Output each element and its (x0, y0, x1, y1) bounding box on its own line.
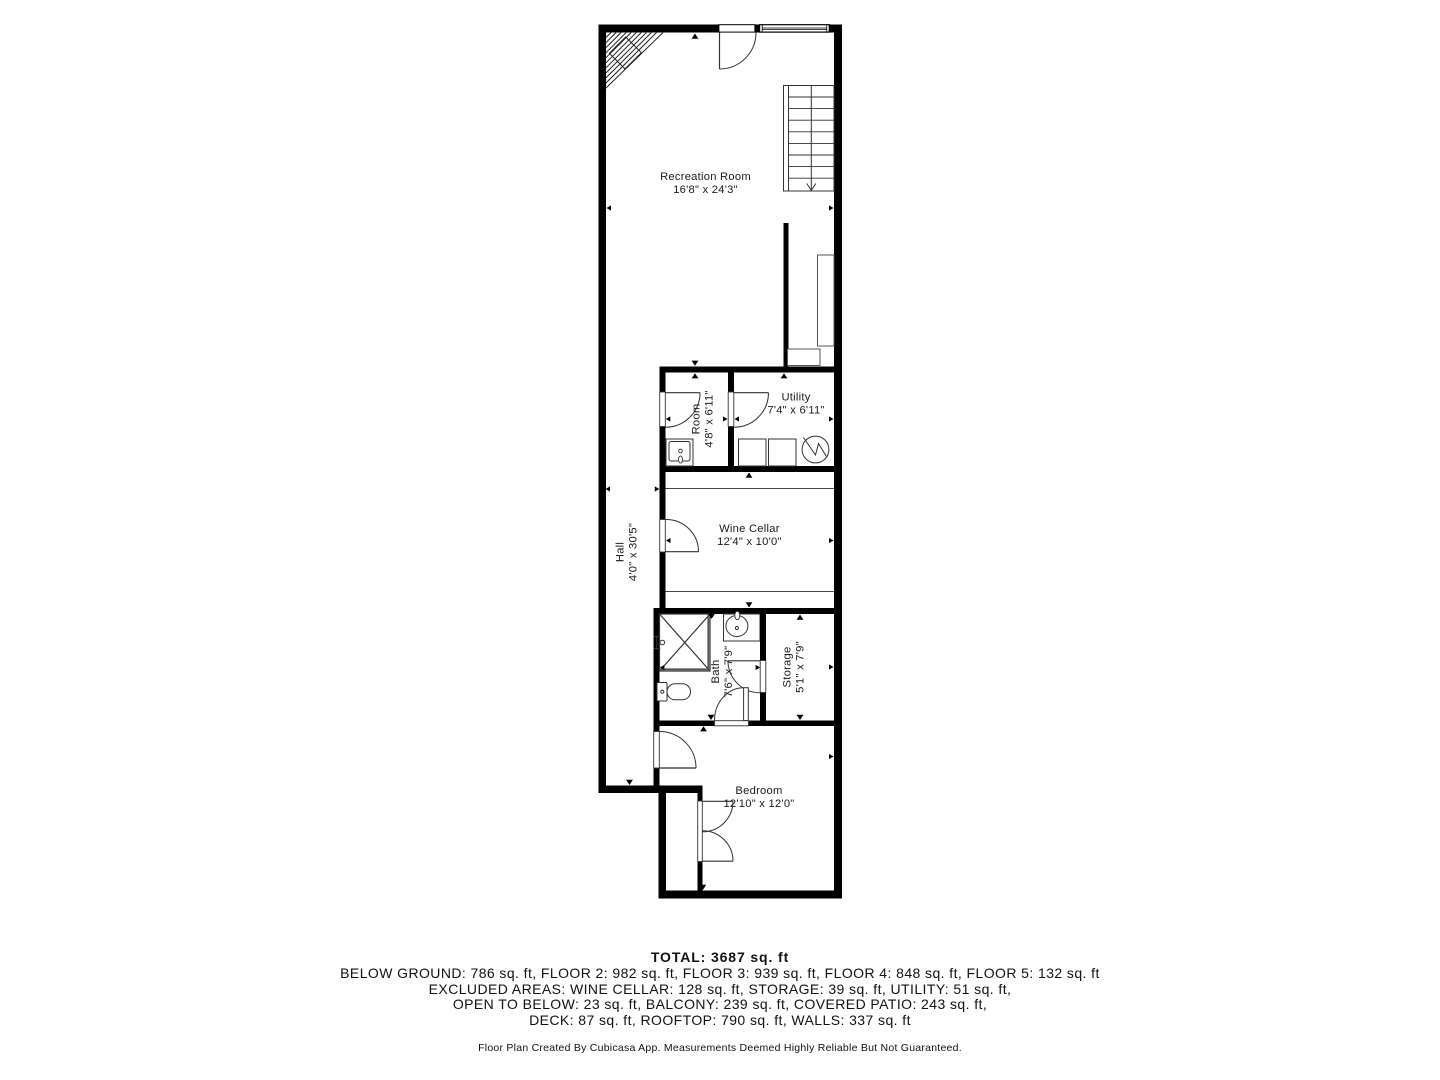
svg-text:4'0" x 30'5": 4'0" x 30'5" (628, 523, 640, 581)
svg-text:Wine Cellar: Wine Cellar (719, 523, 780, 535)
svg-text:5'1" x 7'9": 5'1" x 7'9" (795, 641, 807, 693)
svg-text:Room: Room (691, 404, 703, 435)
svg-text:12'4" x 10'0": 12'4" x 10'0" (717, 536, 782, 548)
svg-text:12'10" x 12'0": 12'10" x 12'0" (723, 798, 794, 810)
svg-text:4'8" x 6'11": 4'8" x 6'11" (704, 390, 716, 447)
svg-text:7'6" x 7'9": 7'6" x 7'9" (723, 646, 735, 698)
svg-text:Recreation Room: Recreation Room (660, 171, 751, 183)
svg-text:7'4" x 6'11": 7'4" x 6'11" (767, 405, 824, 417)
svg-text:Bedroom: Bedroom (735, 785, 782, 797)
svg-text:Bath: Bath (710, 659, 722, 683)
svg-text:Hall: Hall (615, 542, 627, 562)
svg-text:Storage: Storage (782, 647, 794, 688)
svg-text:Utility: Utility (781, 392, 810, 404)
svg-text:16'8" x 24'3": 16'8" x 24'3" (673, 184, 738, 196)
